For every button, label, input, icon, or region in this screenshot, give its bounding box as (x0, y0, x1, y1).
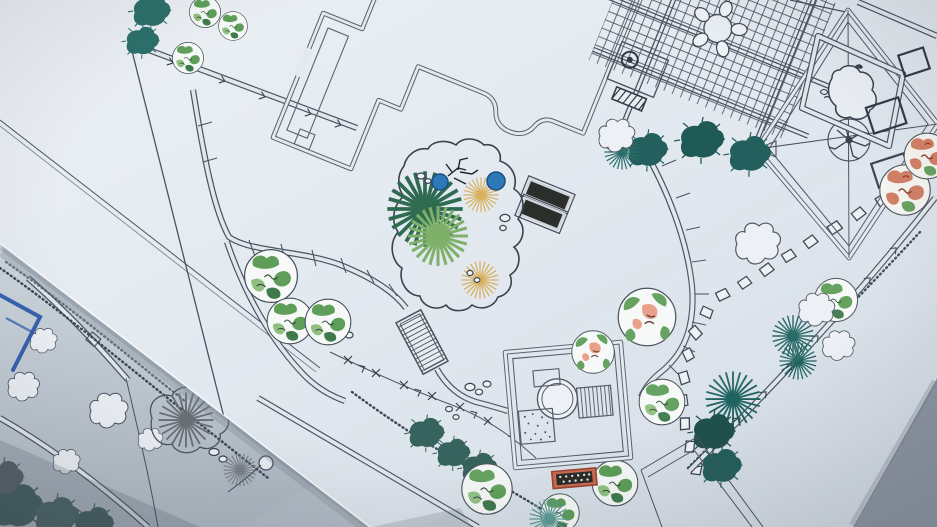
photo-of-landscape-plans (0, 0, 937, 527)
plan-photo-svg (0, 0, 937, 527)
photo-vignette (0, 0, 937, 527)
